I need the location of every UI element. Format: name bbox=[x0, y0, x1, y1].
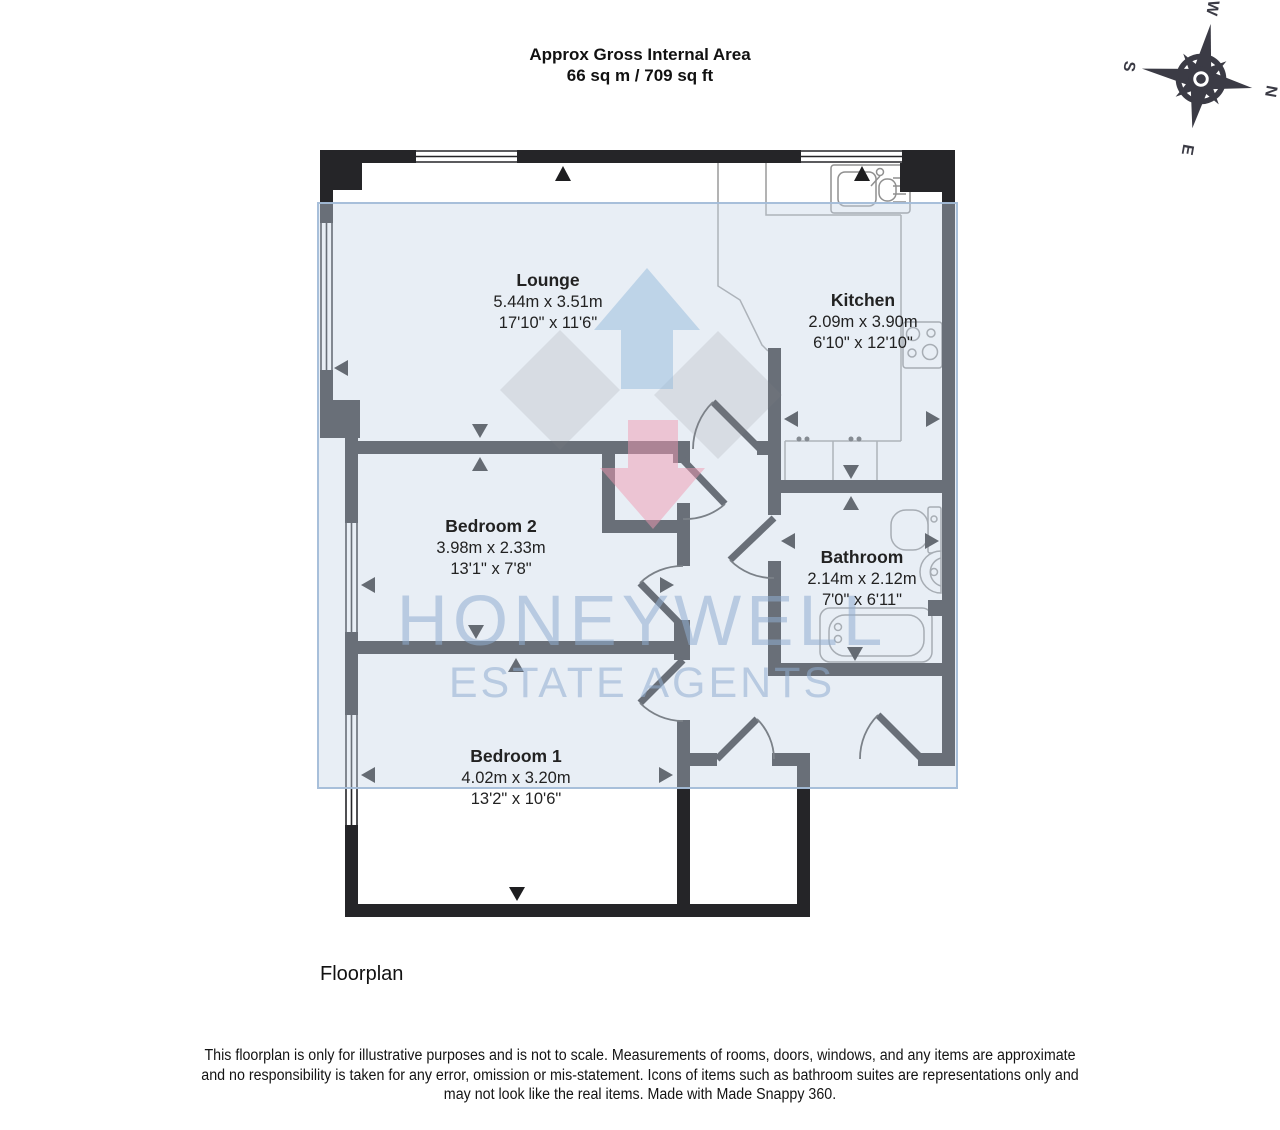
room-name: Lounge bbox=[493, 270, 602, 292]
room-name: Bedroom 1 bbox=[461, 746, 570, 768]
compass-n-label: N bbox=[1261, 84, 1280, 98]
room-name: Kitchen bbox=[808, 290, 917, 312]
room-imperial: 6'10" x 12'10" bbox=[808, 333, 917, 355]
room-metric: 2.14m x 2.12m bbox=[807, 569, 916, 591]
disclaimer-line-3: may not look like the real items. Made w… bbox=[51, 1085, 1229, 1105]
disclaimer-line-2: and no responsibility is taken for any e… bbox=[51, 1066, 1229, 1086]
area-header-title: Approx Gross Internal Area bbox=[0, 44, 1280, 65]
disclaimer-text: This floorplan is only for illustrative … bbox=[51, 1046, 1229, 1105]
room-label-kitchen: Kitchen 2.09m x 3.90m 6'10" x 12'10" bbox=[808, 290, 917, 355]
room-label-bathroom: Bathroom 2.14m x 2.12m 7'0" x 6'11" bbox=[807, 547, 916, 612]
disclaimer-line-1: This floorplan is only for illustrative … bbox=[51, 1046, 1229, 1066]
room-label-lounge: Lounge 5.44m x 3.51m 17'10" x 11'6" bbox=[493, 270, 602, 335]
floorplan-caption: Floorplan bbox=[320, 963, 403, 986]
room-imperial: 13'2" x 10'6" bbox=[461, 789, 570, 811]
watermark-tagline: ESTATE AGENTS bbox=[449, 659, 835, 708]
room-name: Bathroom bbox=[807, 547, 916, 569]
area-header: Approx Gross Internal Area 66 sq m / 709… bbox=[0, 44, 1280, 86]
compass-e-label: E bbox=[1178, 143, 1197, 157]
floorplan-svg: N E S W bbox=[0, 0, 1280, 1130]
room-metric: 2.09m x 3.90m bbox=[808, 312, 917, 334]
area-header-value: 66 sq m / 709 sq ft bbox=[0, 65, 1280, 86]
room-imperial: 17'10" x 11'6" bbox=[493, 313, 602, 335]
floorplan-page: N E S W Approx Gross Internal Area 66 sq… bbox=[0, 0, 1280, 1130]
room-imperial: 7'0" x 6'11" bbox=[807, 590, 916, 612]
room-imperial: 13'1" x 7'8" bbox=[436, 559, 545, 581]
room-label-bedroom-1: Bedroom 1 4.02m x 3.20m 13'2" x 10'6" bbox=[461, 746, 570, 811]
room-name: Bedroom 2 bbox=[436, 516, 545, 538]
room-label-bedroom-2: Bedroom 2 3.98m x 2.33m 13'1" x 7'8" bbox=[436, 516, 545, 581]
room-metric: 5.44m x 3.51m bbox=[493, 292, 602, 314]
room-metric: 3.98m x 2.33m bbox=[436, 538, 545, 560]
room-metric: 4.02m x 3.20m bbox=[461, 768, 570, 790]
compass-w-label: W bbox=[1202, 0, 1222, 18]
